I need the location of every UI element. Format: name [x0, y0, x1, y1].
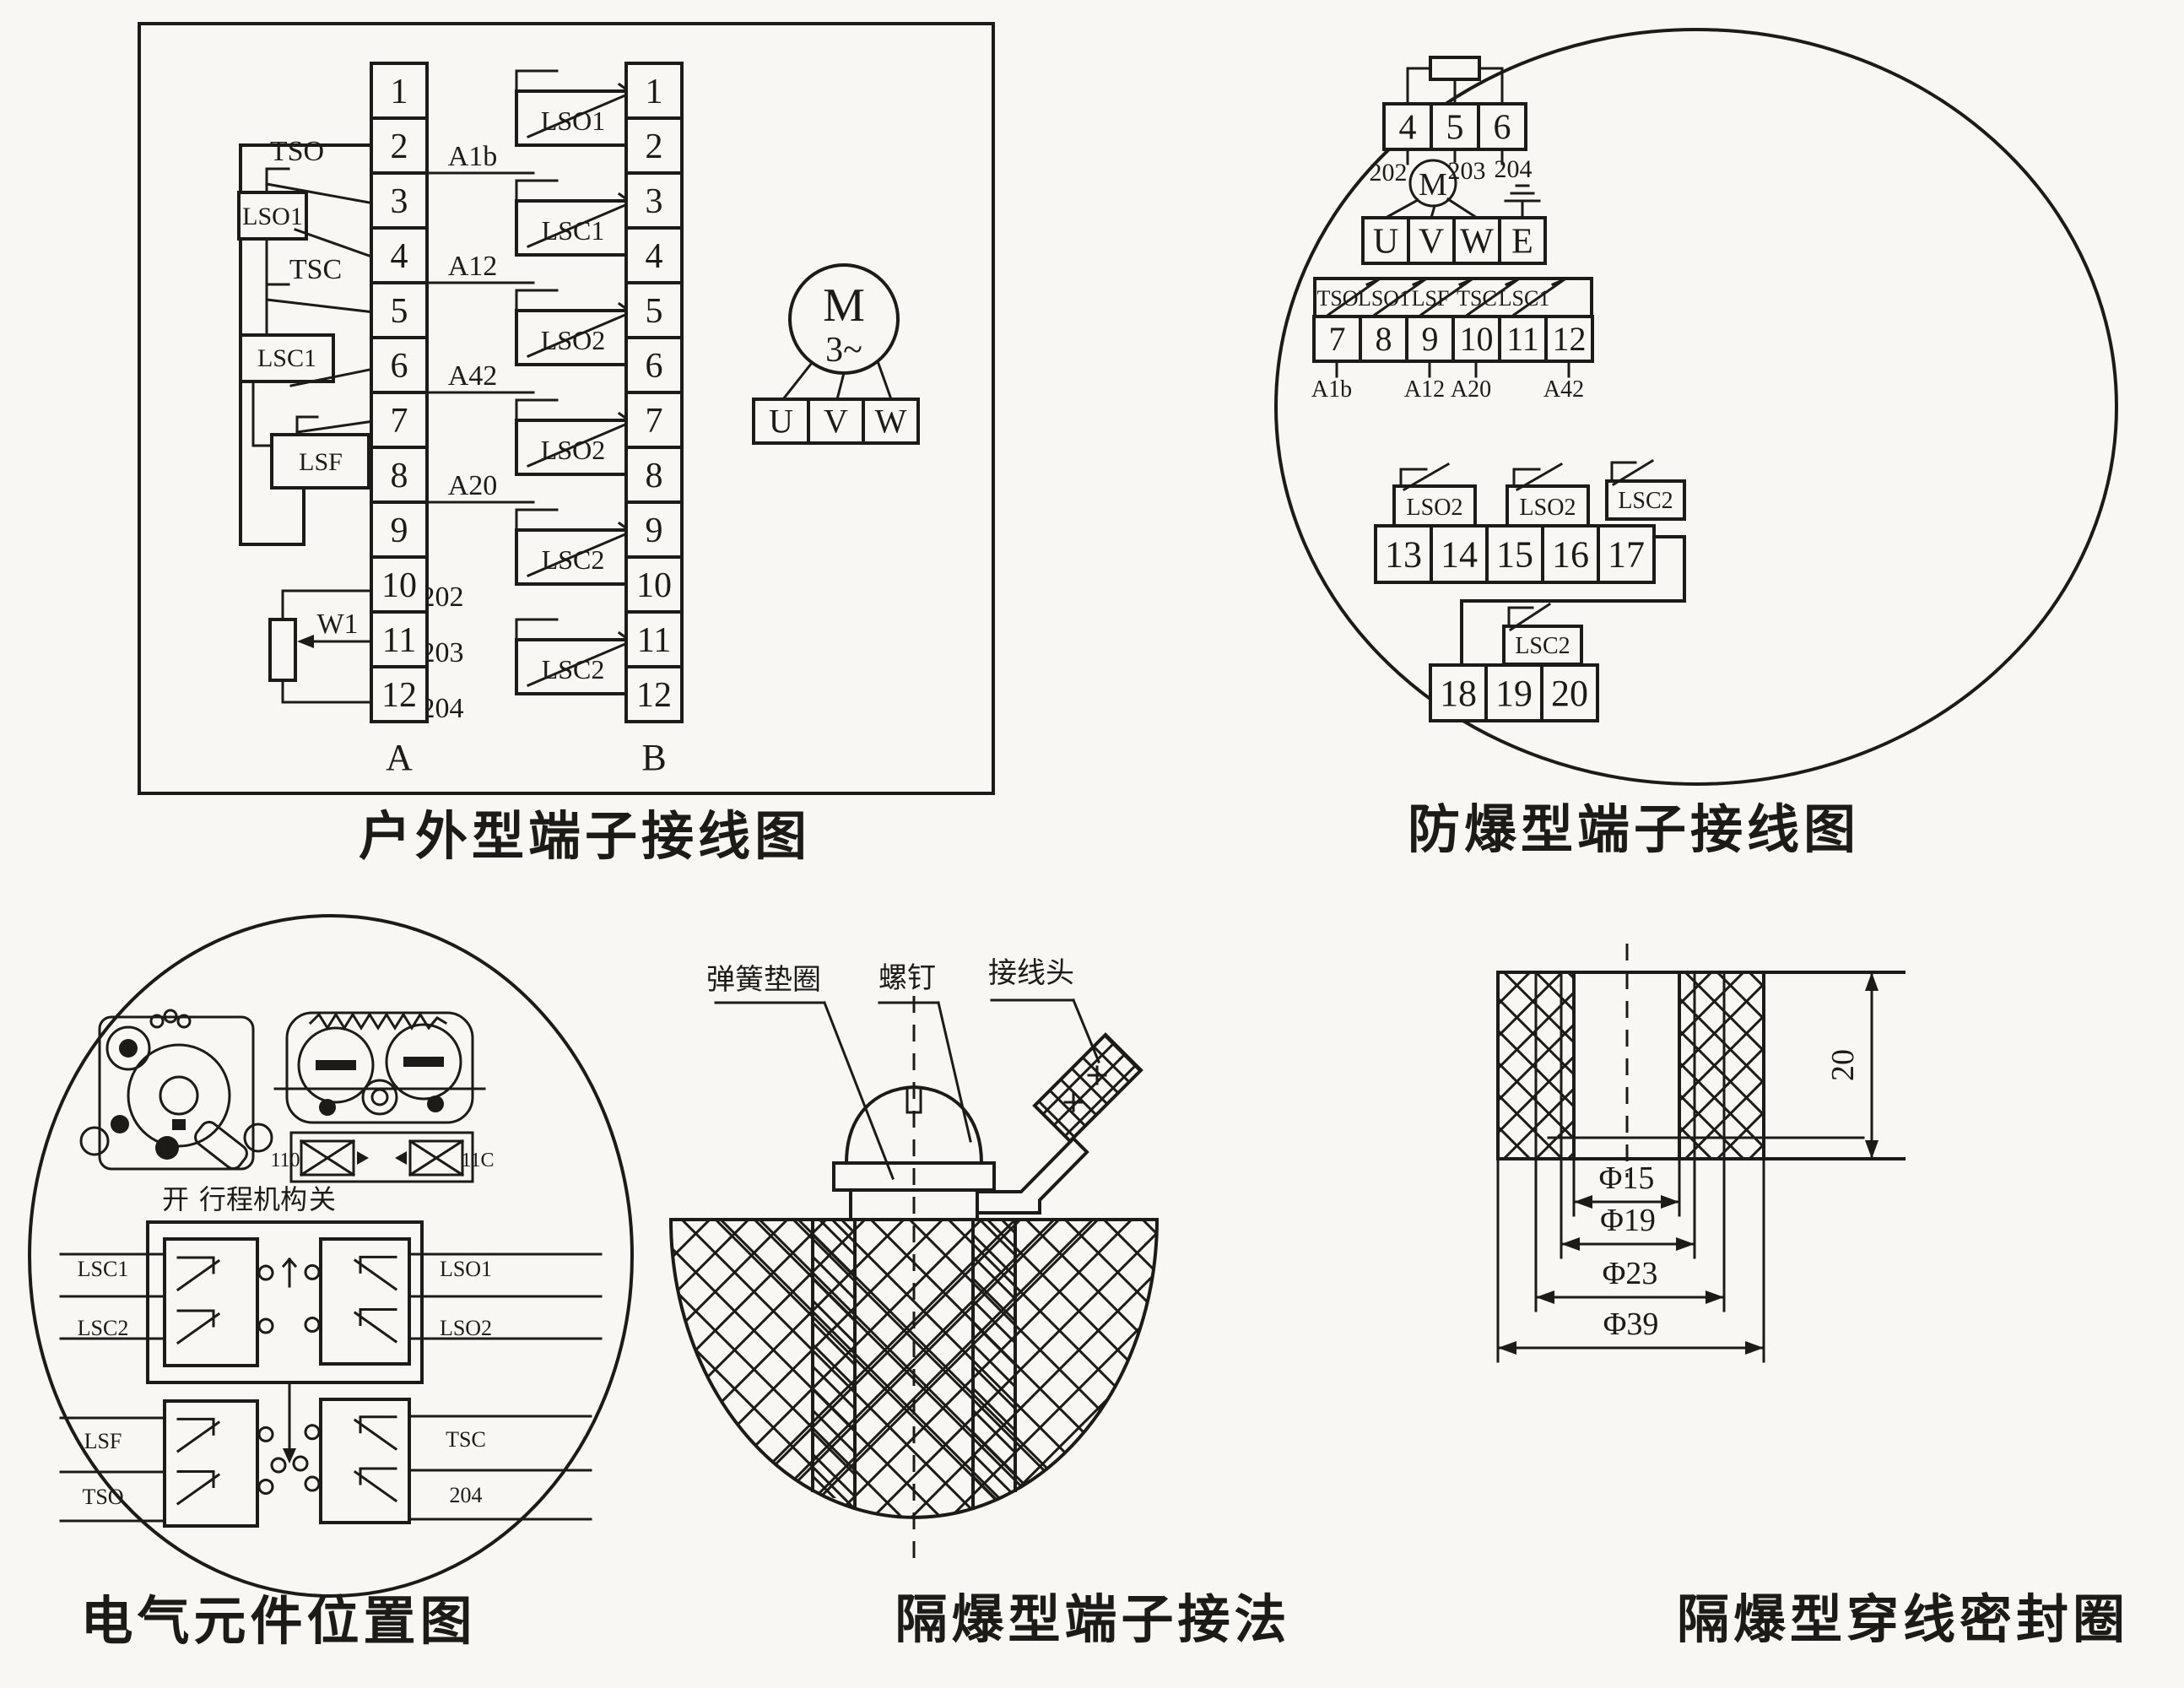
explosionproof-terminal-diagram: 456 202203204 M UVWE TSOLSO1LSFTSCLSC1 7…: [1276, 30, 2116, 859]
terminal-number: 4: [646, 237, 663, 276]
outdoor-caption: 户外型端子接线图: [359, 808, 811, 866]
hatch-line: [371, 1220, 671, 1519]
plunger-icon: [305, 1477, 319, 1491]
switch-label: LSO2: [1407, 495, 1463, 521]
switch-label: LSC2: [542, 654, 605, 684]
callout-washer: 弹簧垫圈: [706, 964, 821, 996]
hatch-line: [1143, 1220, 1442, 1519]
lug-plate-icon: [1035, 1035, 1141, 1141]
mid-symbols: [272, 1259, 307, 1472]
hatch-line: [994, 1035, 1100, 1141]
arrow-right-icon: [1706, 1290, 1724, 1304]
terminal-number: 4: [1399, 108, 1417, 147]
gear-module: [81, 1010, 272, 1172]
hatch-line: [1493, 972, 1679, 1159]
hatch-line: [1060, 1035, 1166, 1141]
wire-a12: A12: [448, 251, 498, 282]
terminal-number: 5: [1446, 108, 1464, 147]
lead-label: LSF: [84, 1429, 122, 1453]
hatch-line: [1065, 1220, 1365, 1519]
screw-icon: [427, 1096, 444, 1112]
position-caption: 电气元件位置图: [80, 1593, 476, 1651]
hatch-line: [732, 1220, 1010, 1498]
motor-lead: [878, 361, 891, 399]
screw-icon: [155, 1136, 179, 1160]
motor-letter: M: [823, 279, 865, 332]
cam-center-icon: [119, 1039, 138, 1058]
lever-icon: [192, 1118, 251, 1171]
outdoor-terminal-diagram: TSO LSO1 TSC LSC1 LSF W1: [139, 24, 993, 866]
seal-ring-diagram: 20 Φ15Φ19Φ23Φ39 隔爆型穿线密封圈: [1311, 944, 2129, 1649]
pivot-icon: [272, 1458, 285, 1472]
plunger-icon: [305, 1265, 319, 1279]
callout-leader: [824, 1003, 893, 1178]
potentiometer-icon: [270, 619, 295, 680]
body-crosshatch: [371, 1220, 1442, 1519]
switch-label: LSO2: [541, 325, 605, 355]
screw-icon: [111, 1115, 129, 1133]
hatch-line: [1568, 972, 1754, 1159]
tso-contact-icon: [267, 169, 289, 184]
hatch-line: [1104, 1035, 1210, 1141]
potentiometer-w1: W1 202 203 204: [270, 582, 464, 724]
switch-label-tso: TSO: [270, 136, 324, 167]
height-dimension: 20: [1825, 972, 1879, 1159]
hatch-line: [848, 1220, 1127, 1498]
terminal-number: 19: [1495, 673, 1533, 714]
open-label: 开: [162, 1184, 189, 1215]
switch-label-lso1: LSO1: [242, 203, 303, 230]
plunger-icon: [259, 1266, 273, 1280]
terminal-number: E: [1511, 222, 1533, 261]
terminal-row-7-12: 789101112: [1314, 316, 1592, 361]
arrow-up-icon: [1865, 972, 1879, 991]
switch-label: LSO1: [1358, 286, 1410, 311]
hatch-line: [841, 1220, 1120, 1498]
motor-lead: [1386, 200, 1418, 218]
terminal-number: 8: [646, 457, 663, 495]
switch-label: LSO1: [541, 105, 605, 136]
switch-bracket-icon: [516, 290, 557, 311]
seal-hatch-left: [1311, 972, 1754, 1159]
terminal-number: 16: [1552, 533, 1589, 575]
hatch-line: [804, 1220, 1083, 1498]
pot-wiper-arrow-icon: [297, 635, 314, 648]
dial-hub-icon: [160, 1077, 197, 1114]
terminal-number: 10: [381, 566, 417, 605]
terminal-connection-diagram: 弹簧垫圈 螺钉 接线头 隔爆型端子接法: [371, 957, 1442, 1649]
wire-label: A1b: [1311, 376, 1352, 403]
switch-label: TSO: [1316, 286, 1358, 311]
terminal-row-456: 456: [1384, 104, 1526, 149]
plunger-icon: [259, 1480, 273, 1494]
outdoor-left-wiring: TSO LSO1 TSC LSC1 LSF: [239, 136, 374, 544]
dial-key-icon: [172, 1119, 186, 1130]
hatch-line: [928, 1035, 1035, 1141]
wire-a1b: A1b: [448, 141, 498, 172]
callout-leader: [938, 1003, 970, 1141]
seal-hatch-right: [1493, 972, 1936, 1159]
spring-icon: [311, 1014, 446, 1028]
switch-label: LSC1: [1499, 286, 1550, 311]
motor-lead: [1431, 206, 1435, 218]
terminal-number: 2: [391, 127, 408, 166]
terminal-number: 11: [637, 621, 671, 660]
terminal-number: 1: [646, 73, 663, 111]
plunger-icon: [259, 1319, 273, 1333]
diameter-label: Φ23: [1603, 1256, 1658, 1291]
motor-terminal-strip: UVW: [754, 399, 918, 443]
diameter-label: Φ19: [1600, 1203, 1656, 1238]
arrow-left-icon: [1536, 1290, 1554, 1304]
switch-label: TSC: [1457, 286, 1497, 311]
hatch-line: [1126, 1035, 1232, 1141]
hatch-line: [527, 1220, 826, 1519]
terminal-mark: 110: [270, 1150, 300, 1171]
arrow-left-icon: [1561, 1237, 1580, 1251]
diameter-dimensions: Φ15Φ19Φ23Φ39: [1498, 1160, 1764, 1361]
terminal-number: 9: [646, 511, 663, 550]
ground-icon: [1506, 186, 1539, 218]
drive-module: [275, 1013, 484, 1123]
gear-slot-icon: [403, 1057, 444, 1067]
hatch-line: [710, 1220, 988, 1498]
lead-label: LSC2: [78, 1316, 129, 1340]
wire-label: 204: [1495, 155, 1533, 183]
terminal-number: 5: [391, 292, 408, 331]
terminal-number: V: [1419, 222, 1444, 261]
terminal-number: 7: [1329, 320, 1346, 358]
diagram-sheet: TSO LSO1 TSC LSC1 LSF W1: [0, 0, 2184, 1688]
wire-label: A12: [1404, 376, 1445, 403]
seal-right-block: [1679, 972, 1764, 1159]
wire-label: 202: [1370, 159, 1408, 187]
motor-lead: [837, 373, 844, 399]
plunger-icon: [259, 1427, 273, 1441]
connection-caption: 隔爆型端子接法: [895, 1592, 1290, 1649]
terminal-mark: 11C: [461, 1150, 494, 1171]
terminal-number: 3: [391, 182, 408, 221]
wire-label: A20: [1451, 376, 1491, 403]
switch-label: LSC2: [1515, 633, 1570, 659]
terminal-number: 4: [391, 237, 408, 276]
diameter-label: Φ39: [1603, 1307, 1659, 1342]
column-b-switches: LSO1LSC1LSO2LSO2LSC2LSC2: [516, 71, 631, 694]
diameter-label: Φ15: [1599, 1160, 1655, 1196]
switch-bracket-icon: [516, 400, 557, 420]
terminal-number: 9: [391, 511, 408, 550]
hatch-line: [1002, 1220, 1280, 1498]
terminal-number: 12: [1553, 320, 1587, 358]
switch-label: LSC2: [542, 544, 605, 575]
wiring-link: [253, 381, 272, 446]
switch-bracket-icon: [516, 71, 557, 91]
hatch-line: [1082, 1035, 1188, 1141]
terminal-number: 20: [1551, 673, 1588, 714]
terminal-number: 12: [381, 676, 417, 715]
terminal-number: W: [1460, 222, 1494, 261]
lsf-blade-icon: [297, 421, 374, 432]
hatch-line: [1311, 972, 1498, 1159]
hatch-line: [1311, 972, 1498, 1159]
motor-letter: M: [1419, 167, 1447, 203]
strip-b-label: B: [641, 737, 666, 778]
terminal-number: V: [824, 403, 848, 441]
hatch-line: [1016, 1035, 1122, 1141]
switch-label-lsf: LSF: [299, 448, 343, 476]
mount-ear-icon: [81, 1128, 108, 1155]
arrow-icon: [357, 1151, 369, 1165]
terminal-number: 18: [1440, 673, 1477, 714]
resistor-icon: [1430, 57, 1479, 79]
terminal-number: 3: [646, 182, 663, 221]
hatch-line: [980, 1220, 1258, 1498]
hatch-line: [928, 1035, 1035, 1141]
height-dim-label: 20: [1825, 1049, 1861, 1081]
motor-phase: 3~: [825, 331, 862, 370]
arrow-icon: [395, 1151, 407, 1165]
row2-wire-labels: A1bA12A20A42: [1311, 361, 1584, 403]
screw-icon: [319, 1099, 336, 1116]
terminal-number: 10: [1460, 320, 1494, 358]
terminal-number: U: [769, 403, 793, 441]
dial-gear-icon: [128, 1045, 230, 1146]
hatch-line: [1493, 972, 1679, 1159]
tsc-blade-icon: [267, 300, 374, 312]
row4-switch: LSC2: [1504, 604, 1581, 664]
switch-label: LSC1: [542, 215, 605, 246]
lead-label: LSO2: [440, 1316, 492, 1340]
shaft-center-icon: [372, 1090, 387, 1105]
hatch-line: [1568, 972, 1754, 1159]
arrow-right-icon: [1661, 1195, 1679, 1209]
pivot-icon: [294, 1457, 307, 1470]
switch-label: LSF: [1412, 286, 1450, 311]
terminal-number: 6: [1494, 108, 1511, 147]
switch-label: LSO2: [1520, 495, 1576, 521]
pot-label: W1: [316, 609, 358, 640]
switch-label: LSC2: [1618, 488, 1673, 514]
hatch-line: [958, 1220, 1236, 1498]
shaft-icon: [363, 1080, 397, 1114]
resistor-lead: [1408, 68, 1430, 104]
terminal-strip-b: 123456789101112: [626, 63, 682, 722]
hatch-line: [556, 1220, 835, 1498]
terminal-number: U: [1373, 222, 1398, 261]
arrow-left-icon: [1574, 1195, 1592, 1209]
wiring-figure: TSO LSO1 TSC LSC1 LSF W1: [0, 0, 2184, 1688]
terminal-row-13-17: 1314151617: [1376, 526, 1654, 582]
switch-bracket-icon: [516, 619, 557, 640]
hatch-line: [578, 1220, 857, 1498]
terminal-strip-a: 123456789101112: [371, 63, 427, 722]
terminal-number: W: [875, 403, 907, 441]
hatch-line: [936, 1220, 1214, 1498]
terminal-number: 10: [636, 566, 672, 605]
hatch-line: [1026, 1220, 1326, 1519]
motor-lead: [783, 363, 812, 399]
switch-label-lsc1: LSC1: [257, 344, 316, 372]
hatch-line: [972, 1035, 1078, 1141]
row3-switches: LSO2 LSO2 LSC2: [1394, 461, 1684, 526]
hatch-line: [1104, 1220, 1403, 1519]
terminal-number: 5: [646, 292, 663, 331]
hatch-line: [488, 1220, 787, 1519]
terminal-number: 7: [646, 402, 663, 441]
terminal-number: 17: [1608, 533, 1645, 575]
terminal-number: 6: [646, 347, 663, 386]
wire-label: A42: [1543, 376, 1584, 403]
terminal-number: 2: [646, 127, 663, 166]
terminal-number: 11: [382, 621, 416, 660]
arrow-right-icon: [1676, 1237, 1695, 1251]
motor-lead: [1448, 199, 1477, 218]
terminal-number: 9: [1422, 320, 1439, 358]
switch-bracket-icon: [516, 181, 557, 201]
terminal-number: 14: [1441, 533, 1478, 575]
seal-caption: 隔爆型穿线密封圈: [1677, 1591, 2129, 1649]
terminal-number: 7: [391, 402, 408, 441]
terminal-number: 1: [391, 73, 408, 111]
close-label: 关: [309, 1184, 336, 1215]
switch-label-tsc: TSC: [289, 254, 342, 285]
terminal-block: 110 11C: [270, 1133, 494, 1182]
terminal-number: 8: [1376, 320, 1392, 358]
arrow-down-icon: [1865, 1140, 1879, 1159]
terminal-number: 8: [391, 457, 408, 495]
plunger-icon: [305, 1426, 319, 1439]
terminal-number: 6: [391, 347, 408, 386]
pot-bottom-lead: [283, 680, 371, 702]
wire-a20: A20: [448, 470, 498, 501]
wire-a42: A42: [448, 360, 498, 392]
terminal-number: 13: [1385, 533, 1422, 575]
switch-label: LSO2: [541, 435, 605, 465]
explosionproof-caption: 防爆型端子接线图: [1408, 801, 1860, 859]
tsc-contact-icon: [267, 284, 289, 300]
lead-label: TSO: [82, 1485, 123, 1509]
hatch-line: [688, 1220, 966, 1498]
strip-a-label: A: [386, 737, 413, 778]
terminal-row-18-20: 181920: [1430, 665, 1597, 721]
lead-label: LSC1: [78, 1257, 129, 1281]
lead-label: 204: [450, 1483, 483, 1507]
lead-label: LSO1: [440, 1257, 492, 1281]
gear-slot-icon: [316, 1060, 356, 1070]
terminal-number: 11: [1506, 320, 1539, 358]
arrow-left-icon: [1498, 1341, 1516, 1355]
hatch-line: [1143, 1220, 1442, 1519]
phase-terminal-row: UVWE: [1363, 218, 1545, 263]
hatch-line: [1126, 1035, 1232, 1141]
callout-screw: 螺钉: [878, 962, 936, 994]
sleeve-hatch: [534, 1220, 1280, 1498]
plunger-icon: [305, 1318, 319, 1332]
outdoor-motor: M 3~ UVW: [754, 265, 918, 443]
lead-label: TSC: [446, 1427, 486, 1452]
terminal-number: 12: [636, 676, 672, 715]
terminal-number: 15: [1496, 533, 1533, 575]
mechanism-label: 行程机构: [199, 1184, 307, 1215]
switch-bracket-icon: [516, 510, 557, 530]
component-position-diagram: 110 11C 开 行程机构 关 LSC1LSC2LSO1LSO2LSFTSOT…: [30, 916, 632, 1651]
hatch-line: [371, 1220, 671, 1519]
callout-lug: 接线头: [988, 957, 1074, 989]
mount-ear-icon: [245, 1124, 272, 1151]
arrow-right-icon: [1745, 1341, 1764, 1355]
